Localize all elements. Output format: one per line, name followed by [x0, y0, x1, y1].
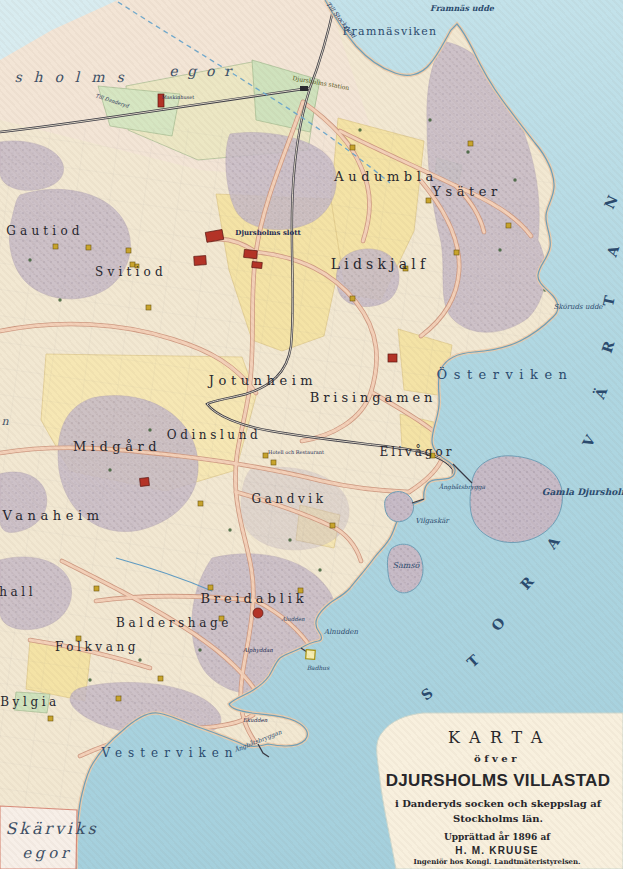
cartouche-made: Upprättad år 1896 af [444, 832, 550, 842]
cartouche-role: Ingeniör hos Kongl. Landtmäteristyrelsen… [413, 857, 580, 866]
badhus-building [306, 650, 316, 660]
label-district-midgard: Midgård [73, 440, 161, 453]
label-vesterviken: Vesterviken [101, 747, 238, 759]
label-framnas-udde: Framnäs udde [430, 4, 494, 12]
label-district-lidskjalf: Lidskjalf [331, 257, 430, 271]
cartouche-ofver: öfver [474, 753, 520, 764]
label-alphyddan: Alphyddan [243, 648, 273, 654]
label-district-folkvang: Folkvang [55, 641, 139, 653]
label-ekudden: Ekudden [243, 718, 268, 724]
label-skarviks-egor: egor [22, 846, 72, 861]
label-district-baldershage: Baldershage [116, 617, 232, 629]
label-osterviken: Österviken [437, 368, 574, 381]
label-district-audumbla: Audumbla [334, 170, 437, 183]
label-neighbor-estate-right: egor [169, 64, 241, 78]
label-edge-partial: n [1, 416, 8, 427]
label-district-gautiod: Gautiod [6, 225, 83, 237]
label-district-vanaheim: Vanaheim [2, 509, 103, 522]
cartouche-karta: KARTA [448, 728, 552, 747]
label-district-bylgia: Bylgia [0, 696, 60, 708]
label-district-svitiod: Svitiod [95, 266, 167, 278]
label-aludden: Aludden [281, 617, 304, 623]
label-neighbor-estate-left: sholms [15, 70, 136, 84]
label-hotell-restaurant: Hotell och Restaurant [268, 450, 324, 455]
label-district-valhall-partial: lhall [0, 586, 36, 598]
label-vilgaskar: Vilgaskär [415, 518, 448, 525]
label-district-ysater: Ysäter [432, 185, 501, 198]
label-skoruds-udde: Sköruds udde [553, 304, 602, 311]
cartouche-sub2: Stockholms län. [453, 813, 543, 824]
label-gamla-djursholm: Gamla Djursholm [542, 488, 623, 497]
island-vilgaskar [385, 492, 414, 522]
label-djursholms-slott: Djursholms slott [235, 229, 300, 236]
label-alnudden: Alnudden [324, 629, 358, 636]
station-building [300, 86, 308, 91]
label-district-brisingamen: Brisingamen [310, 391, 437, 404]
label-samso: Samsö [393, 562, 420, 570]
label-angbatsbrygga-east: Ångbåtsbrygga [439, 484, 485, 490]
label-district-breidablik: Breidablik [200, 592, 307, 605]
island-gamla-djursholm [470, 456, 562, 543]
label-district-odinslund: Odinslund [167, 429, 262, 441]
cartouche-author: H. M. KRUUSE [455, 845, 538, 856]
map-scan-djursholm: sholms egor Framnäs udde Framnäsviken Ti… [0, 0, 623, 869]
label-maskinhuset: Maskinhuset [162, 95, 195, 100]
label-district-jotunheim: Jotunheim [209, 374, 318, 387]
label-skarviks: Skärviks [6, 821, 99, 837]
cartouche-sub1: i Danderyds socken och skeppslag af [395, 798, 601, 809]
cartouche-main-title: DJURSHOLMS VILLASTAD [386, 771, 611, 791]
label-badhus: Badhus [307, 665, 330, 671]
label-district-elivagor: Elivågor [379, 446, 454, 458]
label-district-gandvik: Gandvik [251, 493, 326, 505]
